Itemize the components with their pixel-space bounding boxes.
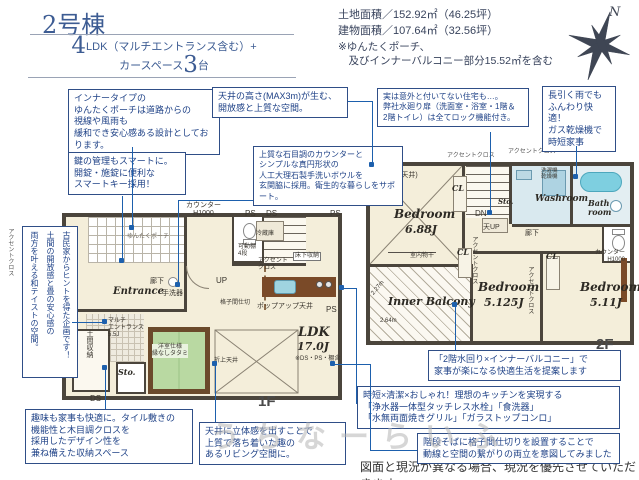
label-counter-2f: カウンター H1000 <box>595 250 625 264</box>
label-ps-2: PS <box>330 209 341 218</box>
label-sto-1f: Sto. <box>118 368 135 377</box>
car-space-text: カースペース <box>119 60 183 72</box>
connector-line <box>342 288 356 289</box>
label-accent-kitchen: アクセント クロス <box>258 258 288 272</box>
label-multi: マルチ エントランス 5.5J <box>108 318 144 339</box>
label-lattice: 格子間仕切 <box>220 300 250 307</box>
wall-segment <box>540 254 543 341</box>
label-balcony: Inner Balcony <box>388 296 475 309</box>
label-drying: 室内物干 <box>410 253 434 260</box>
label-handwash: 手洗器 <box>162 290 183 298</box>
label-bedroom2-size: 5.125J <box>484 297 524 310</box>
connector-line <box>105 368 106 409</box>
label-porch: ゆんたくポーチ <box>127 234 169 241</box>
divider-line <box>30 34 294 35</box>
stove-icon <box>316 281 323 288</box>
divider-line <box>28 77 296 78</box>
label-ceil-up: 天UP <box>483 224 500 232</box>
label-ps-1: PS <box>245 209 256 218</box>
plan-summary-line1: 4LDK（マルチエントランス含む）+ <box>38 38 290 54</box>
compass-icon: N <box>563 4 635 80</box>
plan-summary-line2: カースペース3台 <box>38 57 290 73</box>
flyer-page: 2号棟 4LDK（マルチエントランス含む）+ カースペース3台 土地面積／152… <box>0 0 639 480</box>
connector-dot <box>175 282 180 287</box>
kitchen-sink <box>274 280 296 294</box>
label-doma: 土間収納 <box>85 330 93 358</box>
connector-line <box>178 200 179 284</box>
label-floor-1f: 1F <box>258 393 276 410</box>
label-counter-1f: カウンター H1000 <box>186 202 221 218</box>
label-washer: 洗濯機 乾燥機 <box>541 168 558 181</box>
label-bath: Bath room <box>588 199 611 217</box>
label-up: UP <box>216 276 227 285</box>
connector-dot <box>102 365 107 370</box>
washroom-sink <box>516 170 532 180</box>
label-accent-v1: アクセントクロス <box>470 236 477 284</box>
car-count: 3 <box>183 52 198 78</box>
label-ds-1: DS <box>266 209 277 218</box>
wall-segment <box>184 217 187 309</box>
connector-dot <box>573 174 578 179</box>
label-entrance: Entrance <box>113 286 164 298</box>
callout-mizumawari: 「2階水回り×インナーバルコニー」で 家事が楽になる快適生活を提案します <box>428 350 621 381</box>
callout-gas-dryer: 長引く雨でも ふんわり快適！ ガス乾燥機で 時短家事 <box>542 86 616 152</box>
label-accent-1: アクセントクロス <box>447 153 495 160</box>
connector-line <box>490 132 491 212</box>
wall-segment <box>66 309 187 312</box>
connector-line <box>356 288 357 404</box>
area-note-1: ※ゆんたくポーチ、 <box>338 40 430 55</box>
callout-ceiling-max: 天井の高さ(MAX3m)が生む、 開放感と上質な空間。 <box>212 87 348 118</box>
callout-storage-space: 趣味も家事も快適に。タイル敷きの 機能性と木目調クロスを 採用したデザイン性を … <box>25 409 193 464</box>
connector-dot <box>452 302 457 307</box>
label-bedroom2: Bedroom <box>478 281 539 295</box>
connector-line <box>455 305 456 350</box>
label-cl-2: CL <box>457 248 469 257</box>
building-area-text: 建物面積／107.64㎡（32.56坪） <box>338 24 498 39</box>
connector-dot <box>369 162 374 167</box>
label-ps-3: PS <box>326 305 337 314</box>
label-shelf: 可動棚 4段 <box>238 244 256 258</box>
label-cl-1: CL <box>452 184 464 193</box>
toilet-icon <box>243 223 256 239</box>
label-bedroom3-size: 5.11J <box>590 297 622 310</box>
label-sto-2f: Sto. <box>498 198 513 206</box>
label-fridge: 冷蔵庫 <box>256 231 274 238</box>
door-arc <box>186 266 209 289</box>
toilet-tank-2f <box>612 229 625 235</box>
label-ds-bottom: DS <box>90 394 101 403</box>
land-area-text: 土地面積／152.92㎡（46.25坪） <box>338 8 498 23</box>
label-ldk: LDK <box>298 326 330 341</box>
connector-line <box>576 146 577 176</box>
connector-dot <box>339 285 344 290</box>
connector-dot <box>487 210 492 215</box>
bath-drain-icon <box>610 200 622 212</box>
label-ldk-size: 17.0J <box>297 341 329 354</box>
label-cl-3: CL <box>546 252 558 261</box>
connector-line <box>348 101 372 102</box>
label-bedroom1: Bedroom <box>394 208 455 222</box>
label-bedroom1-size: 6.88J <box>405 224 437 237</box>
callout-wash-bowl: 上質な石目調のカウンターと シンプルな真円形状の 人工大理石製手洗いボウルを 玄… <box>253 146 403 206</box>
connector-dot <box>212 361 217 366</box>
connector-line <box>333 364 370 365</box>
label-hallway-1f: 廊下 <box>150 278 164 286</box>
callout-smart-key: 鍵の管理もスマートに。 開錠・施錠に便利な スマートキー採用！ <box>68 152 186 195</box>
car-unit: 台 <box>198 60 209 72</box>
connector-dot <box>330 361 335 366</box>
floorplan-2f <box>366 162 634 345</box>
label-washroom: Washroom <box>535 194 588 204</box>
area-note-2: 及びインナーバルコニー部分15.52㎡を含む <box>338 54 553 69</box>
ldk-count: 4 <box>71 33 86 59</box>
label-balcony-width: 2.64m <box>380 318 397 325</box>
closet-box <box>453 176 467 212</box>
connector-line <box>372 101 373 164</box>
connector-dot <box>119 258 124 263</box>
compass-n-label: N <box>608 5 621 20</box>
tatami-room <box>148 327 210 394</box>
wall-segment <box>473 251 603 254</box>
ldk-text: LDK（マルチエントランス含む）+ <box>86 41 257 53</box>
bathtub <box>580 172 622 192</box>
label-bedroom3: Bedroom <box>580 281 639 295</box>
stove-icon <box>325 281 332 288</box>
connector-line <box>132 147 133 228</box>
label-dn: DN <box>475 209 487 218</box>
toilet-icon-2f <box>612 235 625 251</box>
connector-dot <box>102 319 107 324</box>
label-popup-ceiling: ポップアップ天井 <box>257 303 313 311</box>
label-underfloor: 床下収納 <box>293 252 321 261</box>
connector-dot <box>129 225 134 230</box>
label-accent-v-left: アクセントクロス <box>6 228 13 276</box>
label-tatami: 洋室仕様 縁なしタタミ <box>152 344 188 358</box>
callout-door-lock: 実は意外と付いてない住宅も…。 弊社水廻り扉（洗面室・浴室・1階＆ 2階トイレ）… <box>377 88 529 127</box>
callout-porch: インナータイプの ゆんたくポーチは道路からの 視線や風雨も 緩和でき安心感ある設… <box>68 89 220 155</box>
label-hallway-2f: 廊下 <box>525 230 539 238</box>
connector-line <box>72 322 104 323</box>
label-coffered: 折上天井 <box>214 358 238 365</box>
connector-line <box>122 196 123 260</box>
watermark-text: うちなーらいふ <box>210 412 511 456</box>
connector-line <box>178 200 253 201</box>
callout-kominka: 古民家からヒントを得た企画です！ 土間の開放感と畳の安心感の 両方を叶える和テイ… <box>22 226 78 378</box>
